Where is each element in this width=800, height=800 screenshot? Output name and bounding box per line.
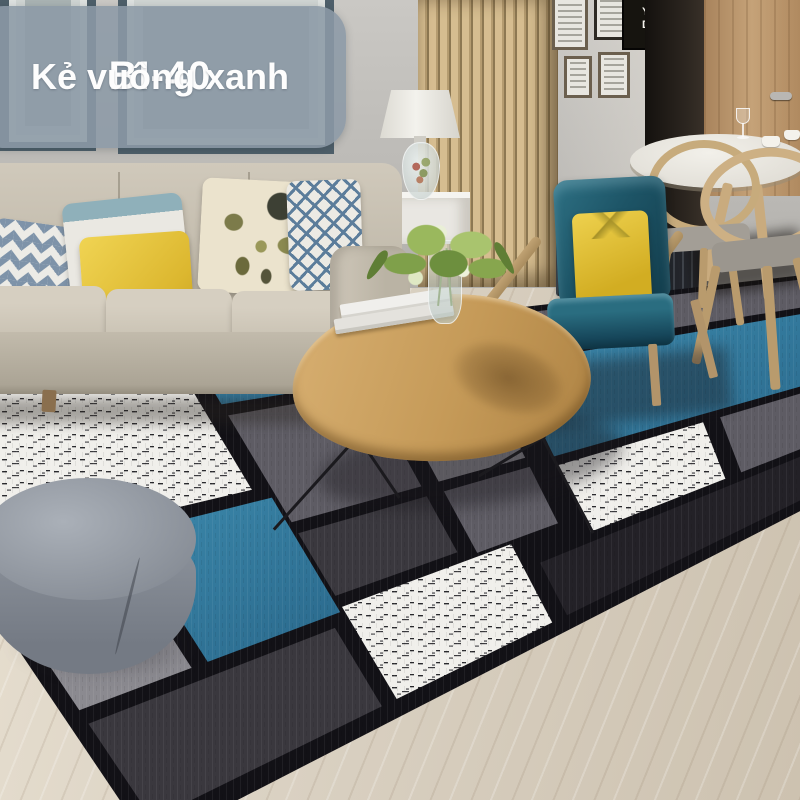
teacup — [784, 130, 800, 140]
table-lamp-shade — [380, 90, 460, 138]
sofa-leg — [41, 390, 56, 413]
wine-glass-stem — [742, 123, 744, 137]
teacup — [762, 136, 780, 147]
overlay-badge: BI-40 Kẻ vuông xanh — [0, 6, 346, 148]
wine-glass-bowl — [736, 108, 750, 124]
flower-bouquet — [376, 212, 508, 306]
badge-product-name: Kẻ vuông xanh — [31, 57, 289, 97]
product-photo: YOUDO — [0, 0, 800, 800]
armchair-pillow-yellow — [572, 210, 653, 306]
wine-glass-foot — [737, 136, 749, 139]
wine-glass — [736, 108, 752, 142]
